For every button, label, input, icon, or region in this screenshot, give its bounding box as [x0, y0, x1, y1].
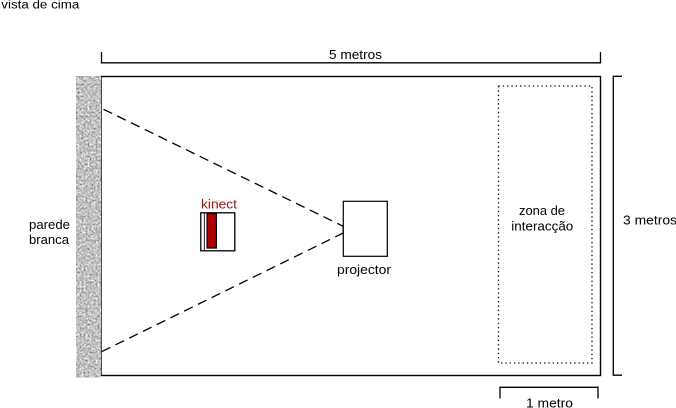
svg-text:3 metros: 3 metros: [623, 214, 676, 228]
svg-text:interacção: interacção: [511, 219, 573, 233]
svg-text:1 metro: 1 metro: [526, 397, 573, 408]
svg-text:zona de: zona de: [519, 204, 565, 218]
svg-text:projector: projector: [337, 263, 391, 277]
svg-text:branca: branca: [29, 233, 69, 247]
svg-text:vista de cima: vista de cima: [1, 0, 80, 12]
svg-text:parede: parede: [29, 218, 70, 232]
svg-text:kinect: kinect: [201, 198, 238, 212]
svg-text:5 metros: 5 metros: [329, 48, 382, 62]
